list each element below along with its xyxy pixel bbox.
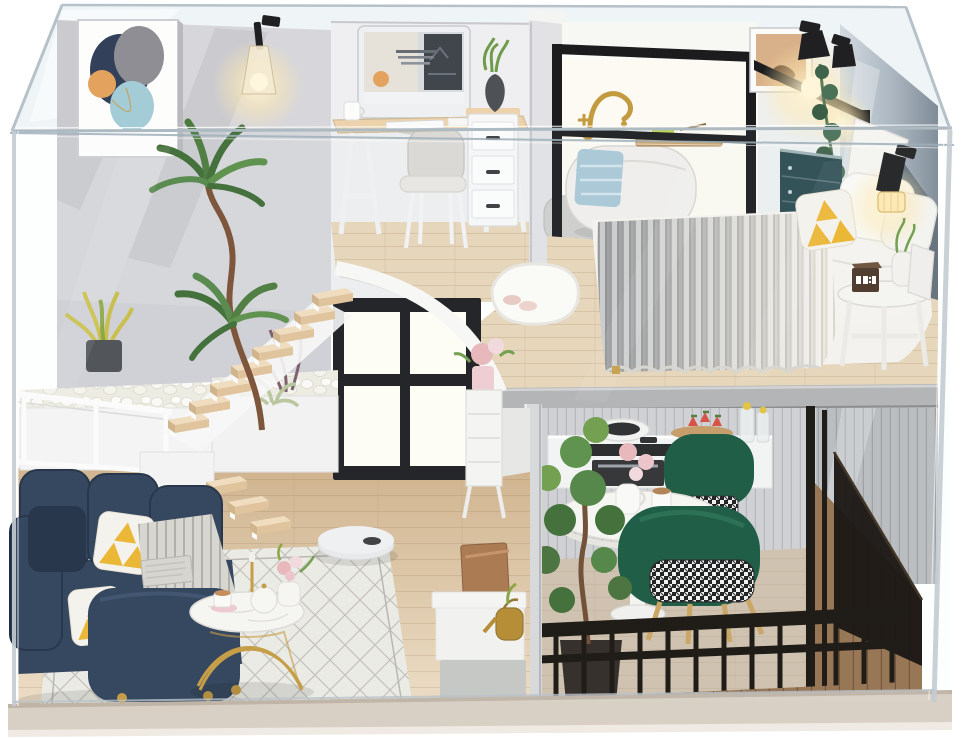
product-photo xyxy=(0,0,966,738)
dollhouse-photo xyxy=(0,0,966,738)
